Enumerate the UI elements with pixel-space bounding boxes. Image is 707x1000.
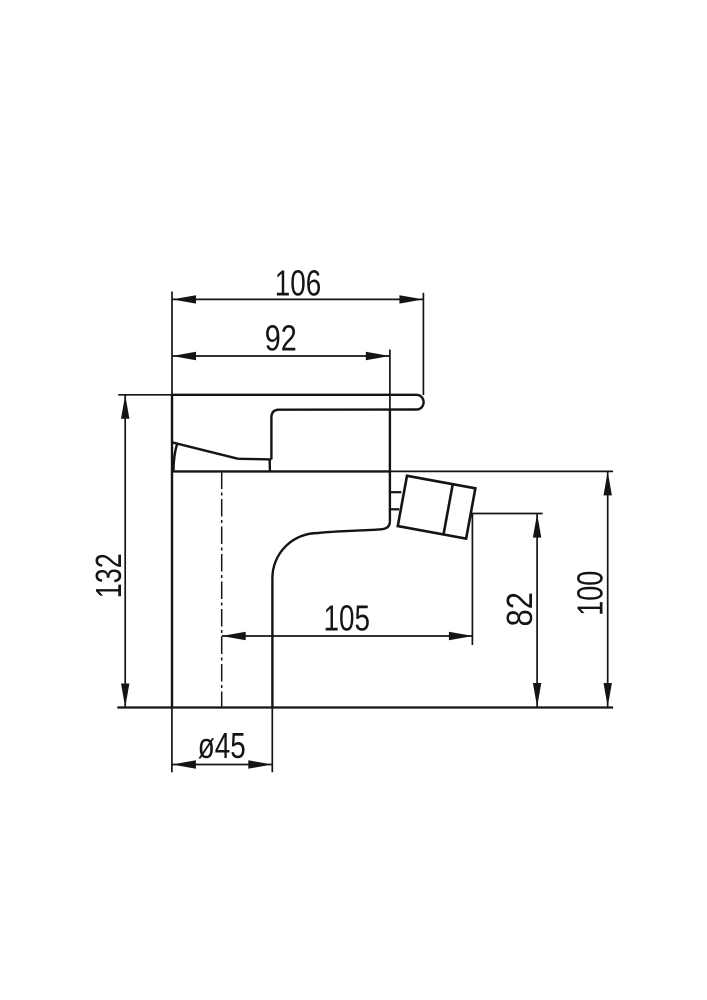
svg-text:106: 106 [275, 263, 322, 304]
svg-text:82: 82 [499, 592, 540, 627]
svg-text:92: 92 [265, 317, 297, 358]
svg-text:100: 100 [569, 571, 610, 616]
svg-text:132: 132 [88, 553, 129, 598]
svg-text:ø45: ø45 [198, 725, 246, 766]
svg-text:105: 105 [324, 598, 371, 639]
